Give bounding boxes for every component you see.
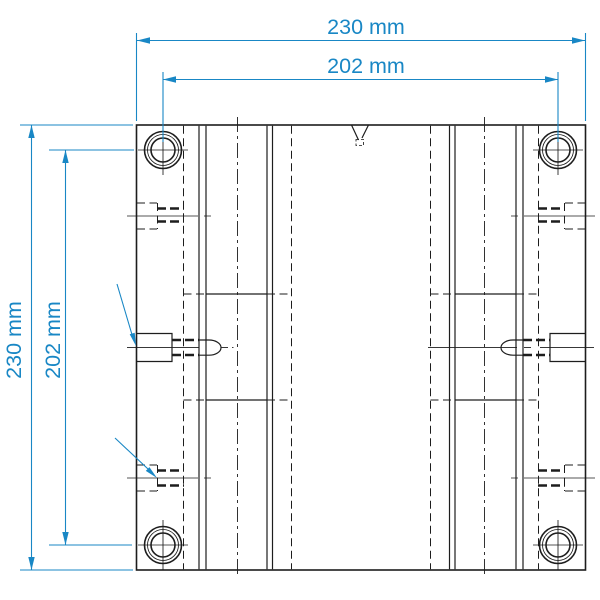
extension-lines: [163, 72, 558, 142]
side-slot-right: [428, 334, 594, 362]
mounting-hole-bottom-right: [533, 520, 583, 570]
dimension-label-left-inner: 202 mm: [41, 301, 65, 379]
part-view: [127, 117, 595, 578]
arrowhead-bottom: [62, 532, 68, 545]
arrowhead-left: [137, 37, 150, 43]
center-v-notch: [352, 125, 369, 146]
mounting-hole-bottom-left: [138, 520, 188, 570]
leader-arrow-upper: [117, 284, 136, 346]
arrowhead-right: [572, 37, 585, 43]
arrowhead-right: [545, 76, 558, 82]
technical-drawing: 230 mm 202 mm 230 mm 202 mm: [0, 0, 600, 600]
arrowhead-left: [163, 76, 176, 82]
locating-pin-left: [200, 340, 222, 355]
part-outline: [137, 125, 586, 570]
side-slot-left: [127, 334, 234, 362]
arrowhead-top: [28, 125, 34, 138]
dimension-label-top-outer: 230 mm: [327, 15, 405, 39]
extension-lines: [20, 125, 133, 570]
cross-channel-edges: [184, 294, 539, 400]
arrowhead-bottom: [28, 557, 34, 570]
dimension-left-inner: 202 mm: [41, 150, 134, 545]
dimension-label-top-inner: 202 mm: [327, 54, 405, 78]
dimension-label-left-outer: 230 mm: [2, 301, 26, 379]
dimension-left-outer: 230 mm: [2, 125, 133, 570]
cad-drawing-canvas: 230 mm 202 mm 230 mm 202 mm: [0, 0, 600, 600]
dimension-top-inner: 202 mm: [163, 54, 558, 142]
arrowhead-top: [62, 150, 68, 163]
